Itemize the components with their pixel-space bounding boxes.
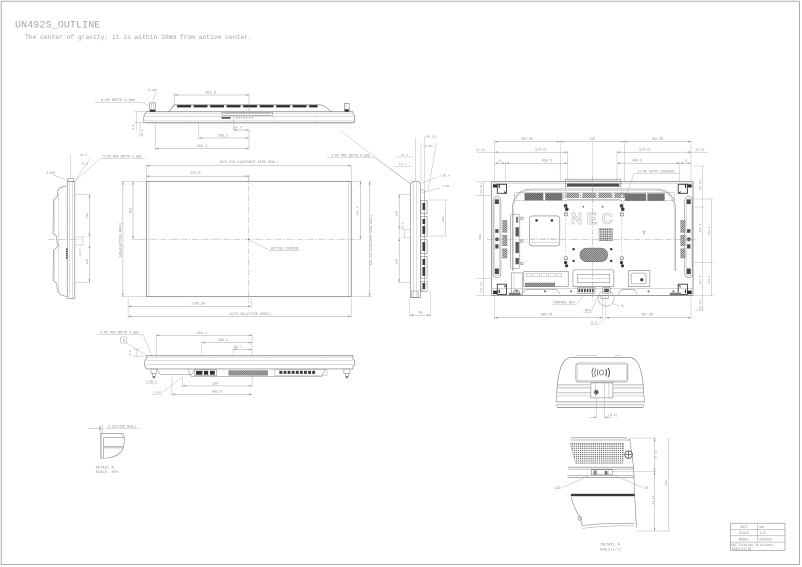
svg-text:1/5: 1/5 xyxy=(760,531,766,536)
svg-text:11.9: 11.9 xyxy=(80,154,87,157)
svg-text:SCALE: NTS: SCALE: NTS xyxy=(96,471,120,475)
svg-text:0.18(SIDE SEAL): 0.18(SIDE SEAL) xyxy=(108,424,137,428)
svg-text:492.1: 492.1 xyxy=(197,145,208,149)
svg-text:(15.67): (15.67) xyxy=(698,299,702,311)
svg-text:UN492S: UN492S xyxy=(760,539,772,543)
svg-text:mm: mm xyxy=(760,526,764,530)
svg-text:102.2: 102.2 xyxy=(699,223,702,232)
svg-text:320: 320 xyxy=(590,137,596,141)
svg-text:UN492S_OUTLINE: UN492S_OUTLINE xyxy=(15,21,100,32)
svg-text:(98): (98) xyxy=(441,215,445,222)
svg-text:235: 235 xyxy=(396,259,399,265)
svg-text:537.6: 537.6 xyxy=(190,172,200,176)
svg-text:1196.00: 1196.00 xyxy=(191,303,205,307)
svg-text:2-Ø5.6: 2-Ø5.6 xyxy=(146,379,157,383)
svg-text:605.6±1.0(WITHOUT SIDE SEAL): 605.6±1.0(WITHOUT SIDE SEAL) xyxy=(369,215,373,266)
svg-text:(1173.59(ACTIVE AREA)): (1173.59(ACTIVE AREA)) xyxy=(228,312,272,316)
svg-text:(98): (98) xyxy=(664,479,668,486)
svg-text:3-M3 MAX DEPTH 4.5mm: 3-M3 MAX DEPTH 4.5mm xyxy=(331,154,369,158)
svg-text:SCALE(1/1): SCALE(1/1) xyxy=(600,548,622,553)
svg-text:268.2: 268.2 xyxy=(218,135,229,139)
svg-text:(8.5): (8.5) xyxy=(608,413,618,417)
svg-text:467.96: 467.96 xyxy=(641,313,653,317)
svg-text:12.1: 12.1 xyxy=(399,163,406,166)
svg-text:150: 150 xyxy=(212,381,218,385)
svg-text:CONTROL KEY: CONTROL KEY xyxy=(553,302,575,306)
svg-text:SCALE: SCALE xyxy=(739,532,749,536)
svg-text:9.6: 9.6 xyxy=(132,124,135,130)
svg-text:The center of gravity: it is w: The center of gravity: it is within 10mm… xyxy=(25,34,252,41)
svg-text:1073.6±1.5(WITHOUT SIDE SEAL): 1073.6±1.5(WITHOUT SIDE SEAL) xyxy=(219,160,278,165)
svg-text:492.1: 492.1 xyxy=(197,332,207,336)
svg-text:MODEL: MODEL xyxy=(739,539,749,543)
svg-text:6-M3 DEPTH 4.5mm: 6-M3 DEPTH 4.5mm xyxy=(101,99,135,103)
svg-text:500: 500 xyxy=(478,234,482,240)
svg-text:33.5: 33.5 xyxy=(401,222,404,229)
svg-text:464.3: 464.3 xyxy=(632,159,642,163)
svg-text:387.86: 387.86 xyxy=(521,137,533,141)
svg-text:2019/01/10: 2019/01/10 xyxy=(732,547,752,551)
svg-text:NEC: NEC xyxy=(571,211,617,228)
svg-text:33.5: 33.5 xyxy=(79,249,82,256)
svg-text:UNIT: UNIT xyxy=(740,526,748,530)
svg-text:9.6: 9.6 xyxy=(129,350,132,355)
svg-text:LED: LED xyxy=(555,486,561,490)
svg-text:(15.67): (15.67) xyxy=(698,179,702,191)
svg-text:11: 11 xyxy=(498,160,502,163)
svg-text:2-M3: 2-M3 xyxy=(442,185,449,188)
svg-text:599.36: 599.36 xyxy=(541,313,553,317)
svg-text:12.1: 12.1 xyxy=(141,129,144,136)
svg-text:23.61: 23.61 xyxy=(695,149,704,152)
svg-text:IR: IR xyxy=(644,486,648,490)
svg-text:387.86: 387.86 xyxy=(652,137,664,141)
svg-text:6-M3 MAX DEPTH 4.5mm: 6-M3 MAX DEPTH 4.5mm xyxy=(100,330,138,334)
svg-text:514.21: 514.21 xyxy=(639,148,651,152)
svg-text:268.2: 268.2 xyxy=(218,338,228,342)
svg-text:(2-M6 DEPTH 15mmMAX): (2-M6 DEPTH 15mmMAX) xyxy=(637,170,675,174)
svg-text:21.61: 21.61 xyxy=(476,149,485,152)
svg-text:(8.95): (8.95) xyxy=(423,144,434,148)
svg-text:(17.97): (17.97) xyxy=(479,281,483,293)
svg-text:235: 235 xyxy=(86,213,89,219)
svg-text:107.3: 107.3 xyxy=(699,275,702,284)
svg-text:2-Ø5.6: 2-Ø5.6 xyxy=(439,173,450,177)
svg-text:DETAIL B: DETAIL B xyxy=(96,466,115,470)
svg-text:483.6: 483.6 xyxy=(205,91,216,95)
svg-text:2-M3: 2-M3 xyxy=(154,391,161,394)
svg-text:ACTIVE CENTER: ACTIVE CENTER xyxy=(271,247,299,251)
svg-text:240.9: 240.9 xyxy=(708,226,711,235)
svg-text:302.4: 302.4 xyxy=(356,206,360,215)
svg-text:235: 235 xyxy=(396,211,399,217)
svg-text:DETAIL A: DETAIL A xyxy=(601,544,620,548)
svg-text:14.7: 14.7 xyxy=(233,127,241,131)
svg-text:90: 90 xyxy=(419,310,423,314)
svg-text:(10.92): (10.92) xyxy=(479,183,483,195)
svg-text:37.15: 37.15 xyxy=(655,450,658,459)
svg-text:11: 11 xyxy=(684,160,688,163)
svg-text:61.15: 61.15 xyxy=(652,495,655,504)
svg-text:514.21: 514.21 xyxy=(535,148,547,152)
svg-text:8.3: 8.3 xyxy=(591,320,597,324)
svg-text:64.7: 64.7 xyxy=(234,345,242,349)
svg-text:235: 235 xyxy=(86,259,89,265)
svg-text:502: 502 xyxy=(129,208,133,214)
svg-text:NFC: NFC xyxy=(585,308,591,312)
svg-text:464.3: 464.3 xyxy=(542,159,552,163)
svg-text:483.6: 483.6 xyxy=(212,390,222,394)
svg-text:21.1: 21.1 xyxy=(401,154,408,157)
svg-text:506±1(ACTIVE AREA): 506±1(ACTIVE AREA) xyxy=(118,223,122,258)
svg-text:134.9: 134.9 xyxy=(708,275,711,284)
svg-text:(45.15): (45.15) xyxy=(424,135,437,139)
svg-text:17.1: 17.1 xyxy=(81,163,88,166)
svg-text:2-M3: 2-M3 xyxy=(46,172,54,176)
svg-text:5-M3 MAX DEPTH 4.5mm: 5-M3 MAX DEPTH 4.5mm xyxy=(103,155,141,159)
